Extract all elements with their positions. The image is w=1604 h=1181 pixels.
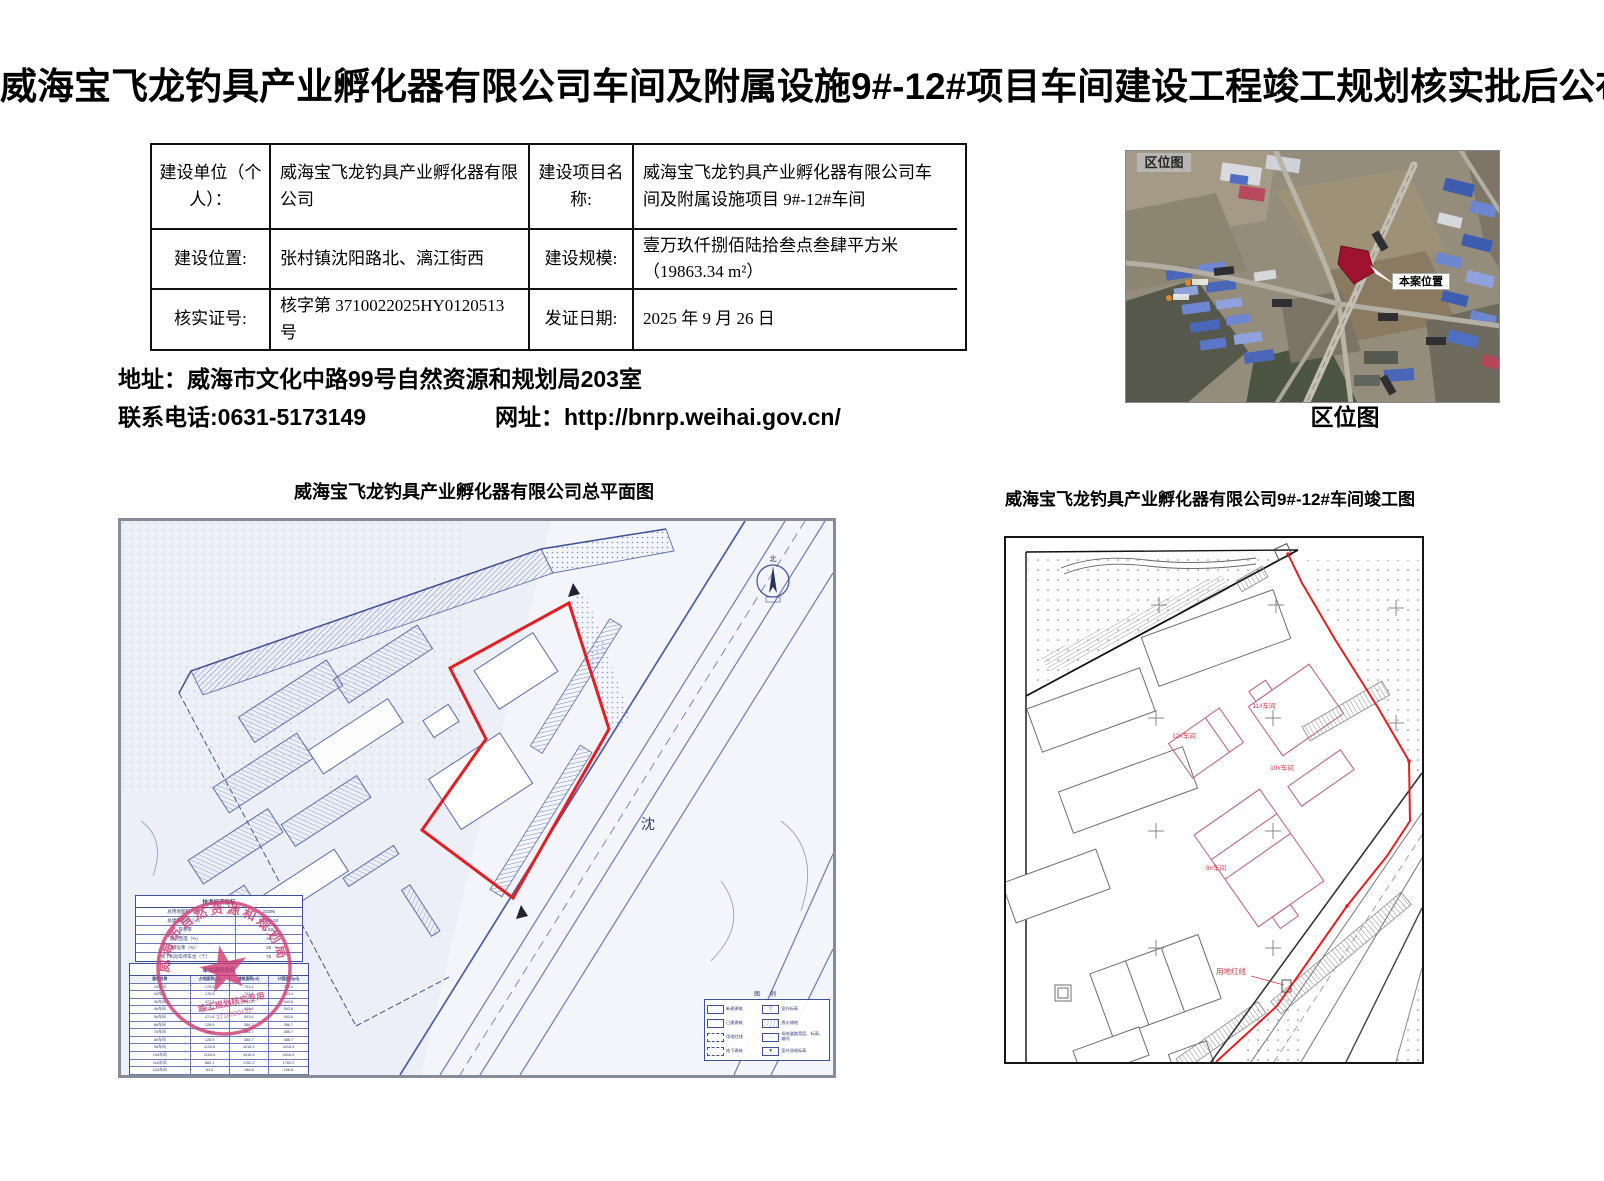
outdoor-elevation-swatch: ▽	[762, 1005, 779, 1014]
map-caption: 区位图	[1265, 398, 1425, 432]
page-title: 威海宝飞龙钓具产业孵化器有限公司车间及附属设施9#-12#项目车间建设工程竣工规…	[0, 56, 1604, 110]
unit-table-row: 11#车间 880.1 1760.2 1760.2	[130, 1060, 308, 1068]
unit-table-row: 10#车间 1104.6 4418.4 4418.4	[130, 1052, 308, 1060]
completion-plan-linework: 12#车间 11#车间 10#车间 9#车间 用地红线	[1006, 538, 1422, 1062]
unit-table-row: 12#车间 83.4 166.8 166.8	[130, 1067, 308, 1075]
label-issue-date: 发证日期:	[530, 290, 634, 349]
underground-swatch	[707, 1047, 724, 1056]
site-plan-title: 威海宝飞龙钓具产业孵化器有限公司总平面图	[118, 478, 830, 504]
general-site-plan-drawing: 北 沈 阳 技术经济指标 总用地面积（㎡） 33396 总建筑面积（㎡） 635…	[118, 518, 836, 1078]
label-scale: 建设规模:	[530, 230, 634, 290]
road-arrow-swatch: →	[762, 1033, 779, 1042]
paving-swatch	[762, 1019, 779, 1028]
phone-line: 联系电话:0631-5173149	[118, 398, 366, 432]
unit-table-row: 合计 — 19863.34 19863.34	[130, 1075, 308, 1078]
red-line-swatch	[707, 1033, 724, 1042]
stamp-star-icon	[196, 941, 252, 995]
value-scale: 壹万玖仟捌佰陆拾叁点叁肆平方米（19863.34 m²）	[634, 230, 957, 290]
value-location: 张村镇沈阳路北、漓江街西	[271, 230, 530, 290]
road-name-char-1: 沈	[641, 816, 655, 832]
new-building-swatch	[707, 1005, 724, 1014]
label-location: 建设位置:	[152, 230, 271, 290]
completion-plan-title: 威海宝飞龙钓具产业孵化器有限公司9#-12#车间竣工图	[985, 485, 1435, 510]
svg-text:北: 北	[770, 555, 777, 563]
label-build-unit: 建设单位（个人）：	[152, 145, 271, 230]
label-cert-no: 核实证号:	[152, 290, 271, 349]
value-issue-date: 2025 年 9 月 26 日	[634, 290, 957, 349]
site-location-label: 本案位置	[1392, 273, 1450, 290]
built-building-swatch	[707, 1019, 724, 1028]
label-workshop-9: 9#车间	[1206, 863, 1226, 872]
address-line: 地址：威海市文化中路99号自然资源和规划局203室	[118, 360, 642, 394]
site-elevation-swatch: ▼	[762, 1047, 779, 1056]
notice-page: { "page_title": "威海宝飞龙钓具产业孵化器有限公司车间及附属设施…	[0, 0, 1604, 1181]
map-corner-label: 区位图	[1137, 153, 1191, 172]
approval-stamp: 威海市自然资源和规划局 竣工规划核实专用 3710020132	[135, 879, 313, 1057]
label-project-name: 建设项目名称:	[530, 145, 634, 230]
value-build-unit: 威海宝飞龙钓具产业孵化器有限公司	[271, 145, 530, 230]
project-info-table: 建设单位（个人）： 威海宝飞龙钓具产业孵化器有限公司 建设项目名称: 威海宝飞龙…	[150, 143, 967, 351]
legend-title: 图 例	[704, 989, 830, 998]
label-workshop-11: 11#车间	[1252, 701, 1275, 710]
completion-plan-drawing: 12#车间 11#车间 10#车间 9#车间 用地红线	[1004, 536, 1424, 1064]
plan-legend: 图 例 新建建筑 ▽ 室外标高 已建建筑 透水铺地 用地红线 → 场地道路宽度、…	[704, 989, 830, 1061]
website-line: 网址：http://bnrp.weihai.gov.cn/	[495, 398, 841, 432]
label-workshop-10: 10#车间	[1270, 763, 1294, 772]
label-workshop-12: 12#车间	[1172, 731, 1196, 740]
value-project-name: 威海宝飞龙钓具产业孵化器有限公司车间及附属设施项目 9#-12#车间	[634, 145, 957, 230]
value-cert-no: 核字第 3710022025HY0120513 号	[271, 290, 530, 349]
redline-label: 用地红线	[1216, 966, 1246, 976]
